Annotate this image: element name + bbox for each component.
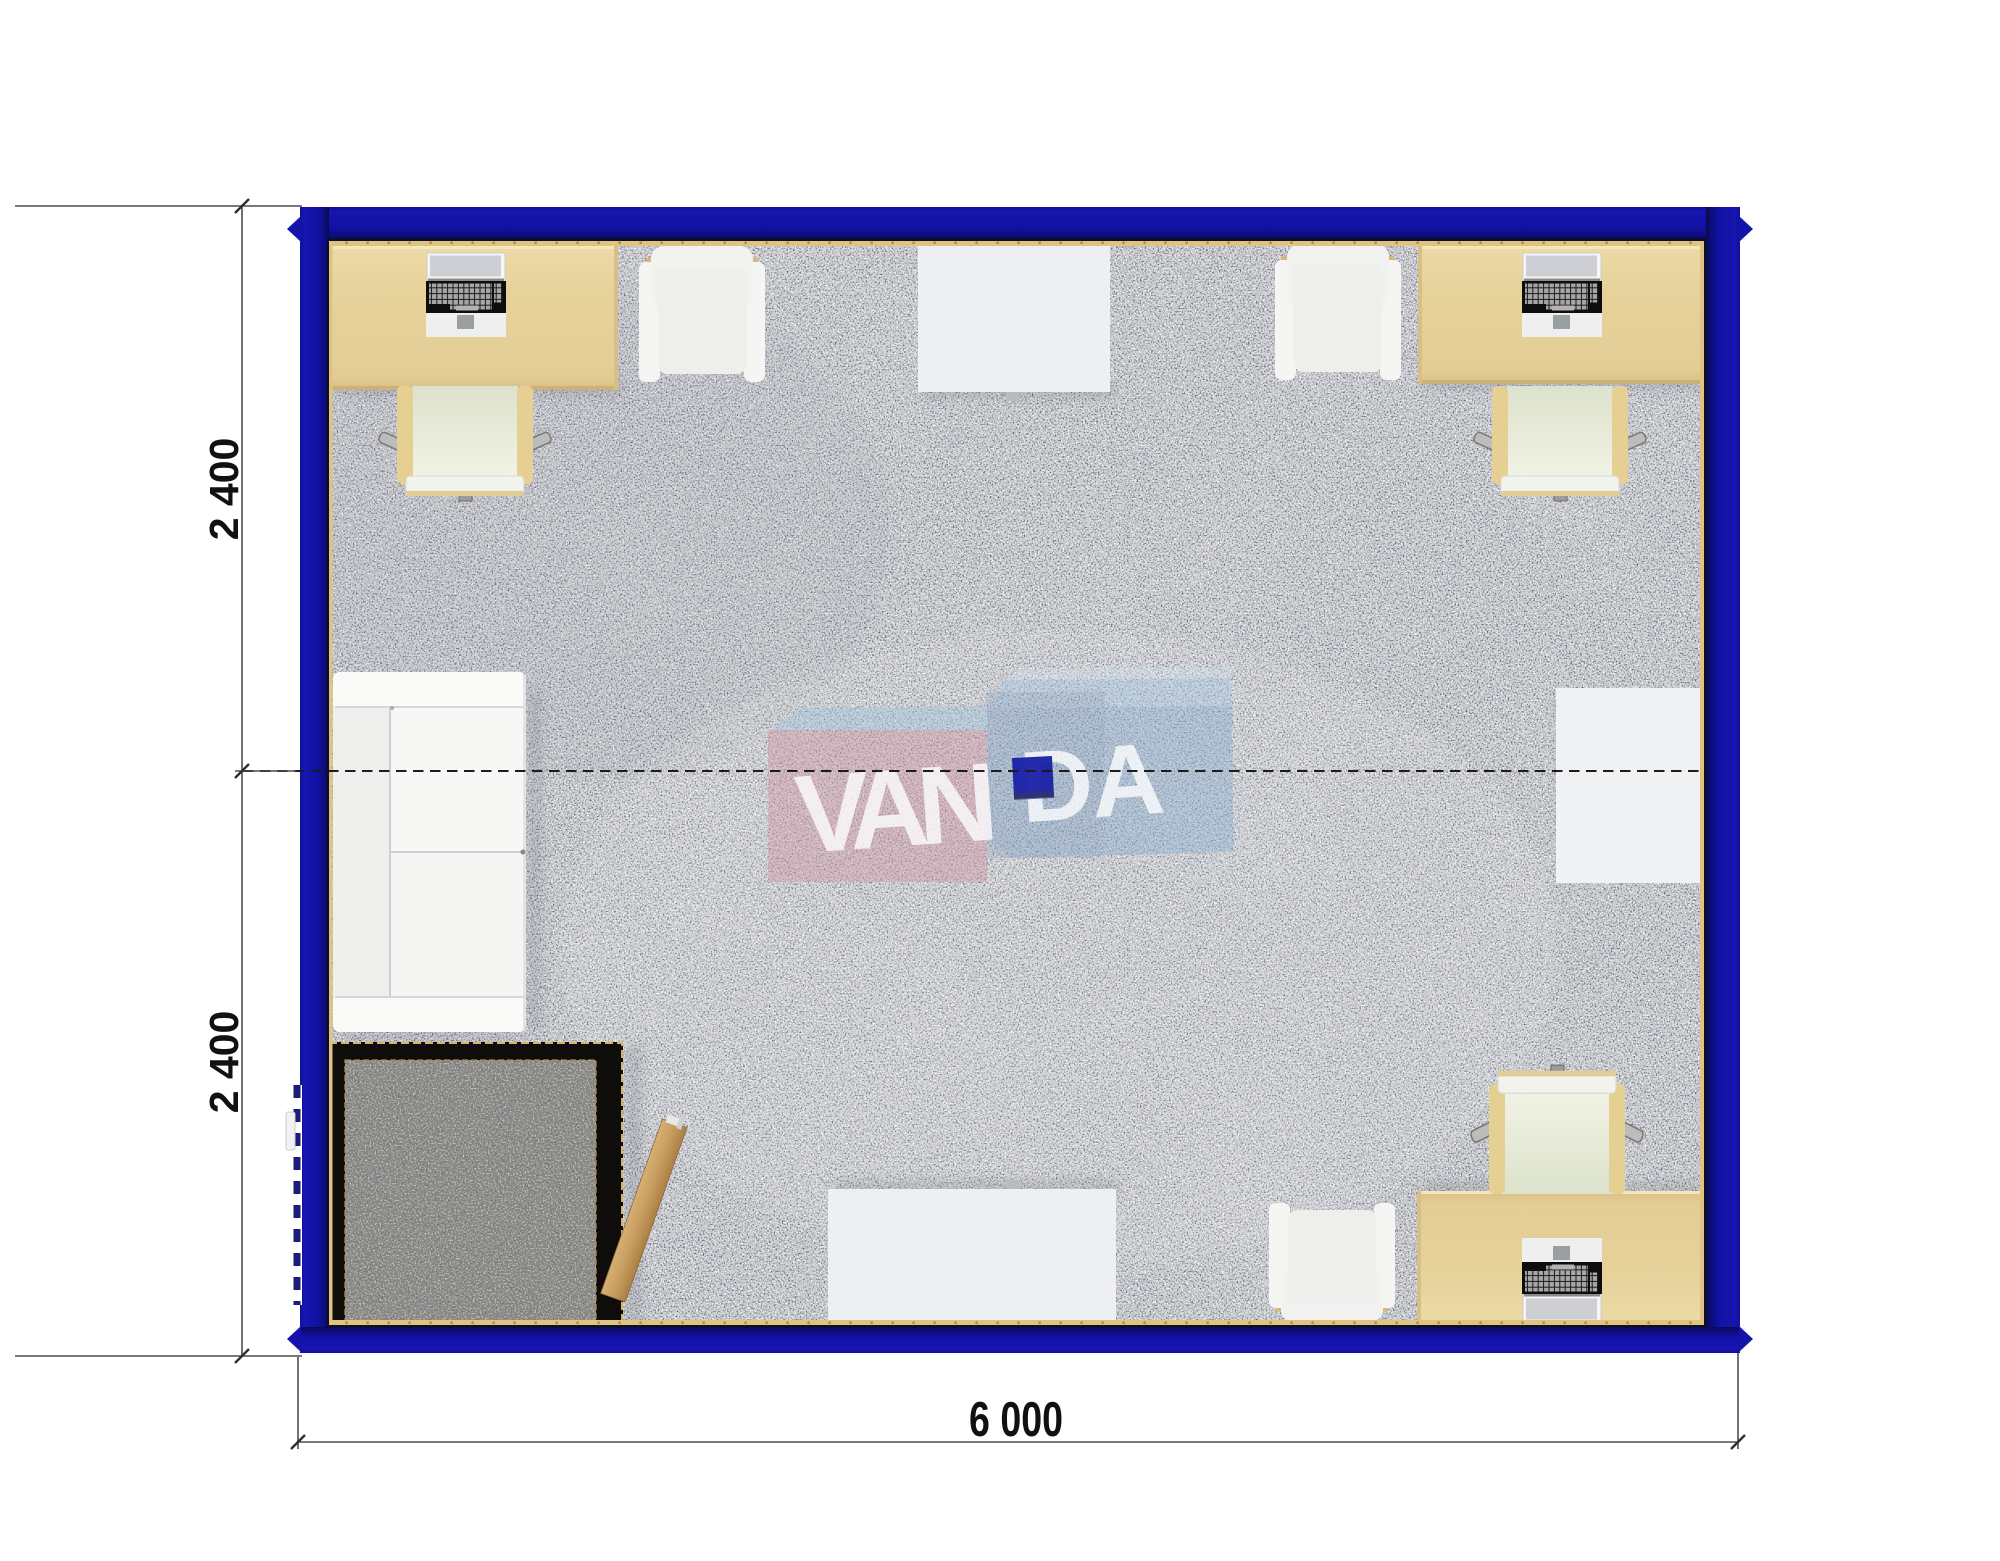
svg-text:2 400: 2 400 (201, 1011, 247, 1114)
svg-text:6 000: 6 000 (969, 1393, 1063, 1447)
svg-text:A: A (1087, 723, 1168, 840)
svg-text:N: N (913, 739, 1002, 868)
svg-text:2 400: 2 400 (201, 438, 247, 541)
